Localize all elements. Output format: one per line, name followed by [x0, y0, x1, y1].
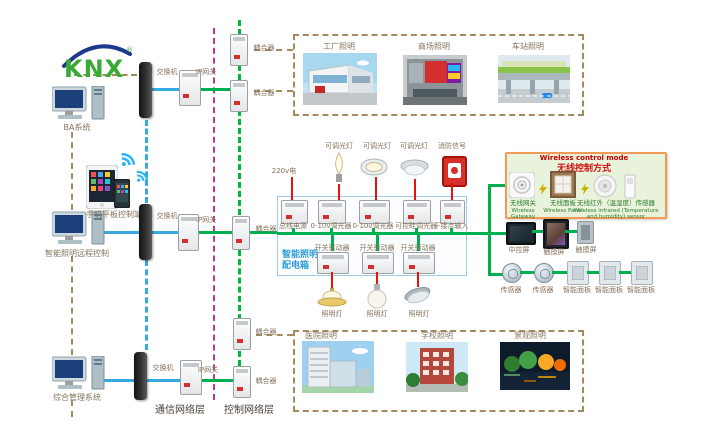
fire-alarm-icon: [442, 156, 467, 187]
lamp-label: 照明灯: [367, 310, 388, 318]
wireless-sensor-en: Wireless infrared (Temperature and humid…: [570, 208, 662, 221]
ethernet-switch: [139, 62, 152, 118]
site-label-factory: 工厂照明: [323, 42, 355, 51]
power-feed-line: [291, 177, 293, 200]
device-label: 传感器: [501, 286, 522, 294]
distribution-box-title-line1: 智能照明: [282, 250, 318, 260]
central-control-screen: [506, 222, 536, 245]
lightning-icon: [579, 180, 591, 192]
tan-dashed-line: [71, 400, 73, 417]
switch-actuator-module: [317, 252, 349, 274]
switch-actuator-module: [403, 252, 435, 274]
load-line: [375, 177, 377, 200]
distribution-box-title: 智能照明 配电箱: [282, 250, 318, 272]
computer-management-system: [52, 356, 106, 392]
downlight-icon: [360, 158, 388, 177]
svg-text:KNX: KNX: [64, 55, 124, 82]
computer-remote-label: 智能照明远程控制: [45, 249, 109, 258]
lightning-icon: [537, 180, 549, 192]
green-link: [565, 230, 577, 233]
wireless-sensor-label: 无线红外（温湿度）传感器 Wireless infrared (Temperat…: [570, 200, 662, 221]
module-label: 总线电源: [279, 222, 307, 230]
knx-logo: KNX ®: [58, 34, 136, 82]
coupler-module: [230, 80, 248, 112]
site-label-station: 车站照明: [512, 42, 544, 51]
lamp-label: 照明灯: [322, 310, 343, 318]
coupler-label: 耦合器: [254, 89, 275, 97]
wireless-sensor-icon: [593, 174, 637, 199]
green-link: [520, 271, 534, 274]
wireless-gateway-icon: [509, 172, 535, 198]
factory-photo: [303, 53, 377, 105]
computer-ba-system: [52, 86, 106, 122]
site-label-mall: 商场照明: [418, 42, 450, 51]
bulb-lamp-icon: [367, 284, 387, 309]
coupler-label: 耦合器: [256, 225, 277, 233]
dimmer-module: [359, 200, 390, 224]
ip-gateway-label: IP网关: [196, 68, 216, 76]
screen-label: 中控屏: [509, 246, 530, 254]
device-label: 智能面板: [595, 286, 623, 294]
green-link: [619, 271, 631, 274]
touch-screen-small: [577, 221, 594, 244]
fire-signal-line: [451, 183, 453, 200]
blue-dashed-line: [145, 260, 148, 350]
distribution-box-title-line2: 配电箱: [282, 261, 309, 271]
hospital-photo: [302, 341, 374, 393]
mall-photo: [403, 55, 467, 105]
wireless-gateway-cn: 无线网关: [510, 199, 536, 207]
module-label: 干接点输入: [434, 222, 469, 230]
computer-management-label: 综合管理系统: [53, 393, 101, 402]
module-label: 0-10v调光器: [352, 222, 393, 230]
tan-dashed-line: [71, 256, 73, 355]
ceiling-fixture-icon: [317, 288, 347, 307]
site-label-school: 学校照明: [421, 331, 453, 340]
ip-gateway-label: IP网关: [196, 216, 216, 224]
load-line: [414, 179, 416, 200]
actuator-label: 开关驱动器: [315, 244, 350, 252]
switch-label: 交换机: [157, 68, 178, 76]
coupler-module: [233, 318, 251, 350]
dry-contact-module: [440, 200, 465, 224]
wireless-gateway-label: 无线网关 Wireless Gateway: [503, 200, 543, 221]
blue-dashed-line: [145, 120, 148, 203]
module-label: 0-10v调光器: [310, 222, 351, 230]
device-label: 智能面板: [627, 286, 655, 294]
wifi-icon: [133, 165, 153, 185]
blue-link: [152, 88, 180, 91]
module-label: 可控硅调光器: [395, 222, 437, 230]
ip-gateway-label: IP网关: [198, 366, 218, 374]
sensor-device: [534, 263, 554, 283]
green-link: [552, 271, 567, 274]
ethernet-switch: [134, 352, 147, 400]
coupler-module: [232, 216, 250, 250]
load-label: 可调光灯: [363, 142, 391, 150]
knx-bus-line: [277, 232, 465, 235]
coupler-label: 耦合器: [256, 377, 277, 385]
screen-label: 触摸屏: [576, 246, 597, 254]
switch-actuator-module: [362, 252, 394, 274]
device-label: 传感器: [533, 286, 554, 294]
wireless-sensor-cn: 无线红外（温湿度）传感器: [577, 199, 655, 207]
knx-lighting-system-diagram: KNX ® BA系统 智能照明远程控制: [0, 0, 715, 443]
switch-label: 交换机: [153, 364, 174, 372]
wireless-gateway-en: Wireless Gateway: [503, 208, 543, 221]
blue-link: [104, 379, 134, 382]
coupler-label: 耦合器: [254, 44, 275, 52]
site-label-landscape: 景观照明: [514, 331, 546, 340]
computer-ba-label: BA系统: [64, 123, 91, 132]
saucer-lamp-icon: [403, 284, 433, 307]
bus-power-module: [281, 200, 308, 224]
power-in-label: 220v电: [272, 167, 297, 175]
lamp-label: 照明灯: [409, 310, 430, 318]
sensor-device: [502, 263, 522, 283]
site-label-hospital: 医院照明: [305, 331, 337, 340]
smart-panel-device: [599, 261, 621, 285]
actuator-label: 开关驱动器: [401, 244, 436, 252]
fire-signal-label: 消防信号: [438, 142, 466, 150]
communication-layer-label: 通信网络层: [155, 401, 205, 416]
green-link: [532, 230, 543, 233]
smart-panel-device: [631, 261, 653, 285]
control-layer-label: 控制网络层: [224, 401, 274, 416]
blue-link: [147, 379, 180, 382]
smart-panel-device: [567, 261, 589, 285]
ethernet-switch: [139, 204, 152, 260]
mobile-control-label: 手机平板控制端: [86, 210, 142, 219]
touch-screen: [543, 219, 569, 249]
lamp-line: [331, 272, 333, 289]
station-photo: [498, 55, 570, 103]
device-label: 智能面板: [563, 286, 591, 294]
blue-link: [152, 231, 178, 234]
screen-label: 触摸屏: [544, 248, 565, 256]
landscape-photo: [500, 342, 570, 390]
magenta-layer-divider: [213, 28, 215, 400]
load-label: 可调光灯: [325, 142, 353, 150]
load-line: [338, 184, 340, 200]
school-photo: [406, 342, 468, 392]
load-label: 可调光灯: [400, 142, 428, 150]
knx-reg-mark: ®: [126, 46, 133, 54]
smartphone-device: [114, 179, 130, 208]
tan-dashed-line: [71, 132, 73, 210]
green-link: [587, 271, 599, 274]
dimmer-module: [318, 200, 346, 224]
coupler-label: 耦合器: [256, 328, 277, 336]
wireless-panel-icon: [550, 171, 576, 198]
dimmable-bulb-icon: [332, 152, 346, 184]
knx-bus-branch: [488, 184, 491, 276]
actuator-label: 开关驱动器: [360, 244, 395, 252]
coupler-module: [233, 366, 251, 398]
knx-bus-to-wireless: [488, 184, 506, 187]
switch-label: 交换机: [157, 212, 178, 220]
coupler-module: [230, 34, 248, 66]
thyristor-dimmer-module: [403, 200, 431, 224]
ceiling-lamp-icon: [400, 158, 429, 179]
blue-link: [104, 231, 140, 234]
green-link: [200, 379, 233, 382]
